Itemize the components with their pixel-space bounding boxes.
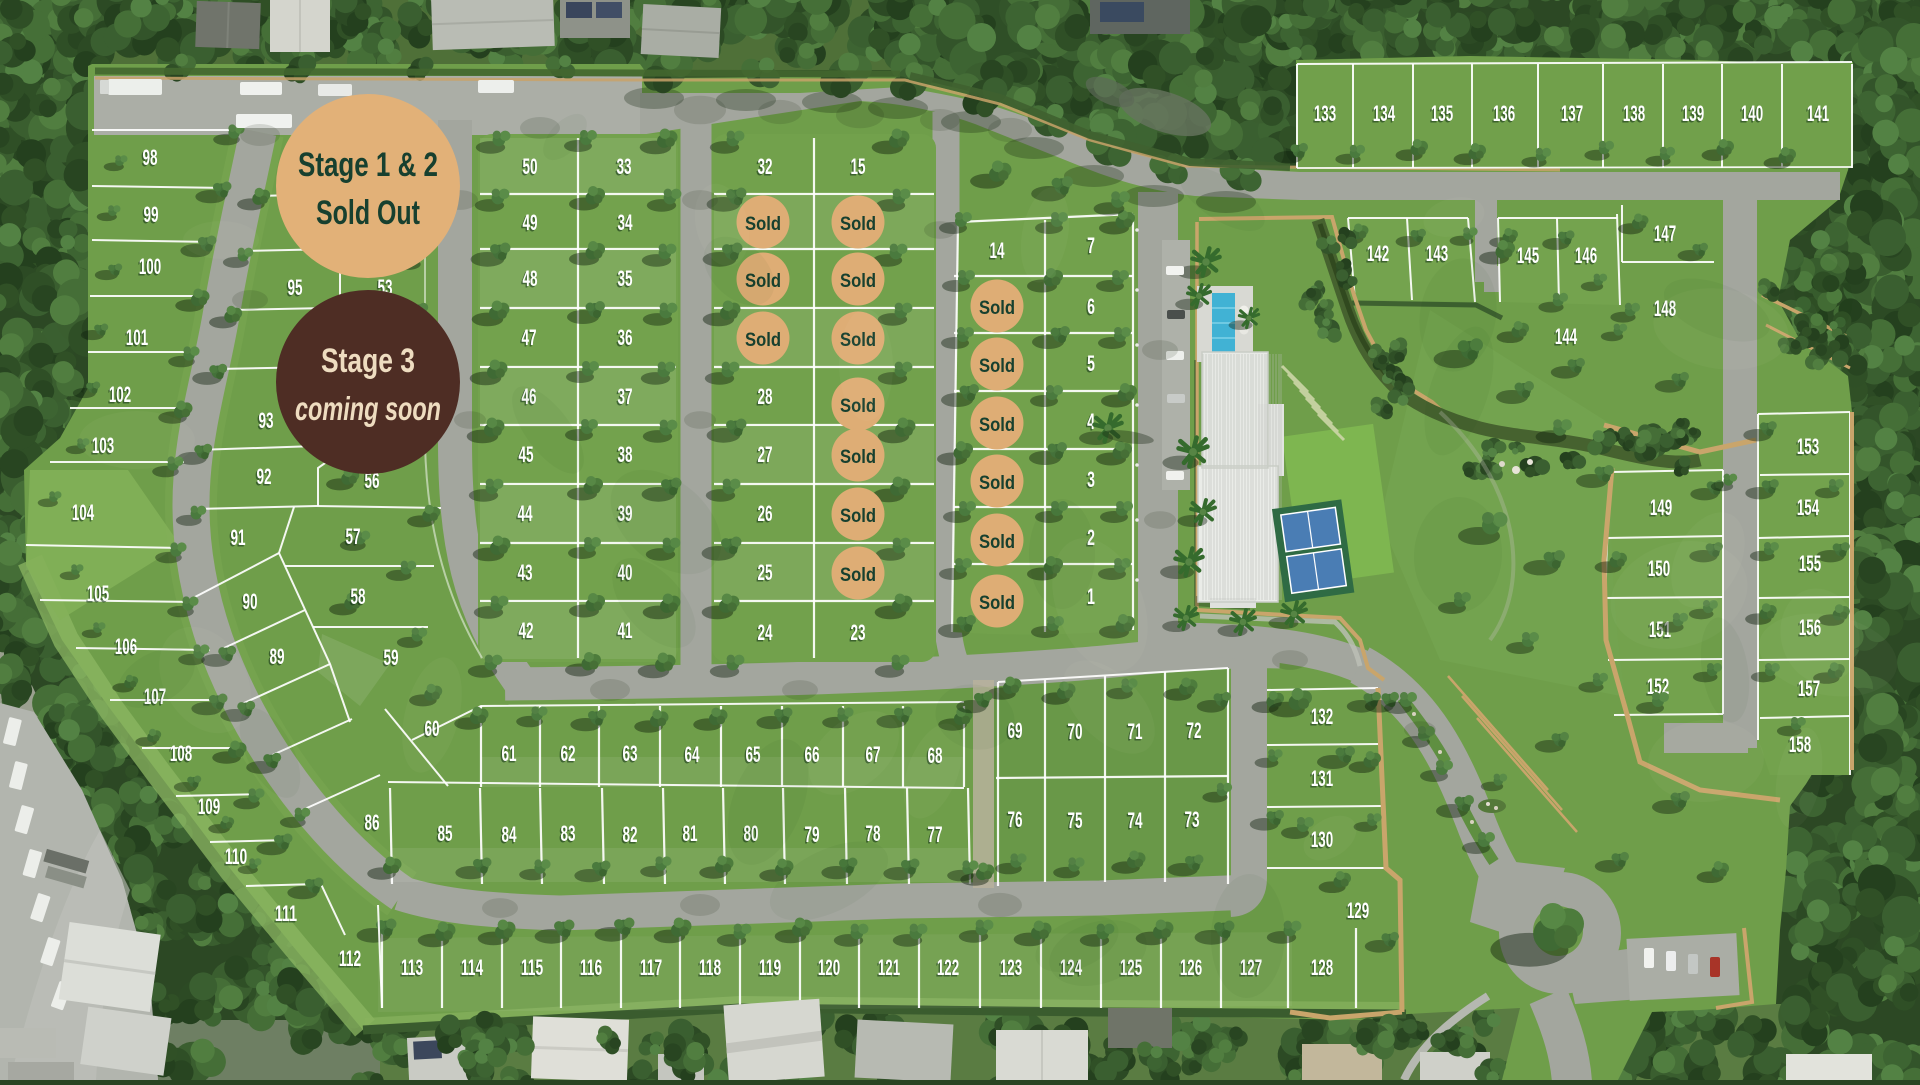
svg-text:23: 23 — [851, 620, 866, 645]
svg-text:142: 142 — [1367, 241, 1389, 266]
svg-text:50: 50 — [523, 154, 538, 179]
svg-text:140: 140 — [1741, 101, 1763, 126]
svg-text:Sold: Sold — [979, 356, 1015, 377]
svg-text:154: 154 — [1797, 495, 1820, 520]
svg-text:149: 149 — [1650, 495, 1672, 520]
svg-text:6: 6 — [1087, 294, 1095, 319]
svg-text:Sold Out: Sold Out — [316, 194, 420, 232]
svg-text:24: 24 — [758, 620, 773, 645]
svg-text:113: 113 — [401, 955, 423, 980]
svg-text:105: 105 — [87, 581, 109, 606]
svg-text:116: 116 — [580, 955, 602, 980]
svg-text:76: 76 — [1008, 807, 1023, 832]
svg-text:137: 137 — [1561, 101, 1583, 126]
svg-text:26: 26 — [758, 501, 773, 526]
svg-text:108: 108 — [170, 741, 192, 766]
svg-text:92: 92 — [257, 464, 272, 489]
svg-text:47: 47 — [522, 325, 537, 350]
svg-text:118: 118 — [699, 955, 721, 980]
svg-text:84: 84 — [502, 822, 517, 847]
svg-text:Sold: Sold — [979, 473, 1015, 494]
svg-text:106: 106 — [115, 634, 137, 659]
svg-text:101: 101 — [126, 325, 148, 350]
svg-text:33: 33 — [617, 154, 632, 179]
svg-text:102: 102 — [109, 382, 131, 407]
svg-text:73: 73 — [1185, 807, 1200, 832]
svg-text:135: 135 — [1431, 101, 1453, 126]
svg-text:48: 48 — [523, 266, 538, 291]
svg-text:99: 99 — [144, 202, 159, 227]
svg-text:34: 34 — [618, 210, 633, 235]
svg-text:134: 134 — [1373, 101, 1396, 126]
svg-text:4: 4 — [1087, 409, 1095, 434]
svg-text:62: 62 — [561, 741, 576, 766]
svg-text:155: 155 — [1799, 551, 1821, 576]
svg-text:93: 93 — [259, 408, 274, 433]
svg-text:91: 91 — [231, 525, 246, 550]
svg-text:28: 28 — [758, 384, 773, 409]
svg-text:Sold: Sold — [745, 330, 781, 351]
svg-text:Sold: Sold — [979, 298, 1015, 319]
svg-text:Sold: Sold — [979, 593, 1015, 614]
svg-text:100: 100 — [139, 254, 161, 279]
svg-text:43: 43 — [518, 560, 533, 585]
svg-text:123: 123 — [1000, 955, 1022, 980]
svg-text:139: 139 — [1682, 101, 1704, 126]
svg-text:122: 122 — [937, 955, 959, 980]
svg-text:90: 90 — [243, 589, 258, 614]
svg-text:5: 5 — [1087, 351, 1095, 376]
svg-text:136: 136 — [1493, 101, 1515, 126]
svg-text:49: 49 — [523, 210, 538, 235]
svg-text:112: 112 — [339, 946, 361, 971]
svg-text:Sold: Sold — [840, 506, 876, 527]
svg-text:115: 115 — [521, 955, 543, 980]
svg-text:128: 128 — [1311, 955, 1333, 980]
svg-text:110: 110 — [225, 844, 247, 869]
svg-text:72: 72 — [1187, 718, 1202, 743]
svg-text:145: 145 — [1517, 243, 1539, 268]
svg-text:77: 77 — [928, 822, 943, 847]
svg-text:98: 98 — [143, 145, 158, 170]
svg-text:44: 44 — [518, 501, 533, 526]
svg-text:27: 27 — [758, 442, 773, 467]
svg-text:133: 133 — [1314, 101, 1336, 126]
svg-text:79: 79 — [805, 822, 820, 847]
svg-text:146: 146 — [1575, 243, 1597, 268]
svg-text:38: 38 — [618, 442, 633, 467]
svg-text:41: 41 — [618, 618, 633, 643]
svg-text:104: 104 — [72, 500, 95, 525]
svg-text:Stage 1 & 2: Stage 1 & 2 — [298, 146, 438, 184]
svg-text:126: 126 — [1180, 955, 1202, 980]
svg-text:42: 42 — [519, 618, 534, 643]
svg-text:81: 81 — [683, 821, 698, 846]
svg-text:3: 3 — [1087, 467, 1095, 492]
svg-text:111: 111 — [275, 901, 297, 926]
svg-text:120: 120 — [818, 955, 840, 980]
svg-text:109: 109 — [198, 794, 220, 819]
svg-text:86: 86 — [365, 810, 380, 835]
svg-text:141: 141 — [1807, 101, 1829, 126]
svg-text:74: 74 — [1128, 808, 1143, 833]
svg-text:129: 129 — [1347, 898, 1369, 923]
svg-text:Sold: Sold — [840, 565, 876, 586]
svg-text:58: 58 — [351, 584, 366, 609]
svg-text:Sold: Sold — [745, 214, 781, 235]
svg-text:63: 63 — [623, 741, 638, 766]
svg-text:57: 57 — [346, 524, 361, 549]
svg-text:45: 45 — [519, 442, 534, 467]
svg-text:Sold: Sold — [979, 532, 1015, 553]
svg-text:64: 64 — [685, 742, 700, 767]
svg-text:153: 153 — [1797, 434, 1819, 459]
svg-text:131: 131 — [1311, 766, 1333, 791]
svg-text:144: 144 — [1555, 324, 1578, 349]
svg-text:25: 25 — [758, 560, 773, 585]
svg-text:coming soon: coming soon — [295, 390, 441, 427]
svg-text:75: 75 — [1068, 808, 1083, 833]
svg-text:14: 14 — [990, 238, 1005, 263]
svg-text:32: 32 — [758, 154, 773, 179]
svg-text:15: 15 — [851, 154, 866, 179]
svg-text:143: 143 — [1426, 241, 1448, 266]
svg-text:89: 89 — [270, 644, 285, 669]
svg-text:117: 117 — [640, 955, 662, 980]
svg-text:114: 114 — [461, 955, 484, 980]
svg-text:95: 95 — [288, 275, 303, 300]
svg-text:Stage 3: Stage 3 — [321, 342, 415, 380]
svg-text:37: 37 — [618, 384, 633, 409]
svg-text:36: 36 — [618, 325, 633, 350]
svg-text:82: 82 — [623, 822, 638, 847]
svg-text:Sold: Sold — [979, 415, 1015, 436]
svg-text:Sold: Sold — [840, 271, 876, 292]
svg-text:121: 121 — [878, 955, 900, 980]
svg-text:7: 7 — [1087, 233, 1095, 258]
svg-text:35: 35 — [618, 266, 633, 291]
svg-text:83: 83 — [561, 821, 576, 846]
svg-text:Sold: Sold — [840, 447, 876, 468]
svg-text:59: 59 — [384, 645, 399, 670]
svg-text:119: 119 — [759, 955, 781, 980]
svg-text:85: 85 — [438, 821, 453, 846]
svg-text:147: 147 — [1654, 221, 1676, 246]
svg-text:61: 61 — [502, 741, 517, 766]
svg-text:Sold: Sold — [840, 214, 876, 235]
svg-text:132: 132 — [1311, 704, 1333, 729]
svg-text:138: 138 — [1623, 101, 1645, 126]
